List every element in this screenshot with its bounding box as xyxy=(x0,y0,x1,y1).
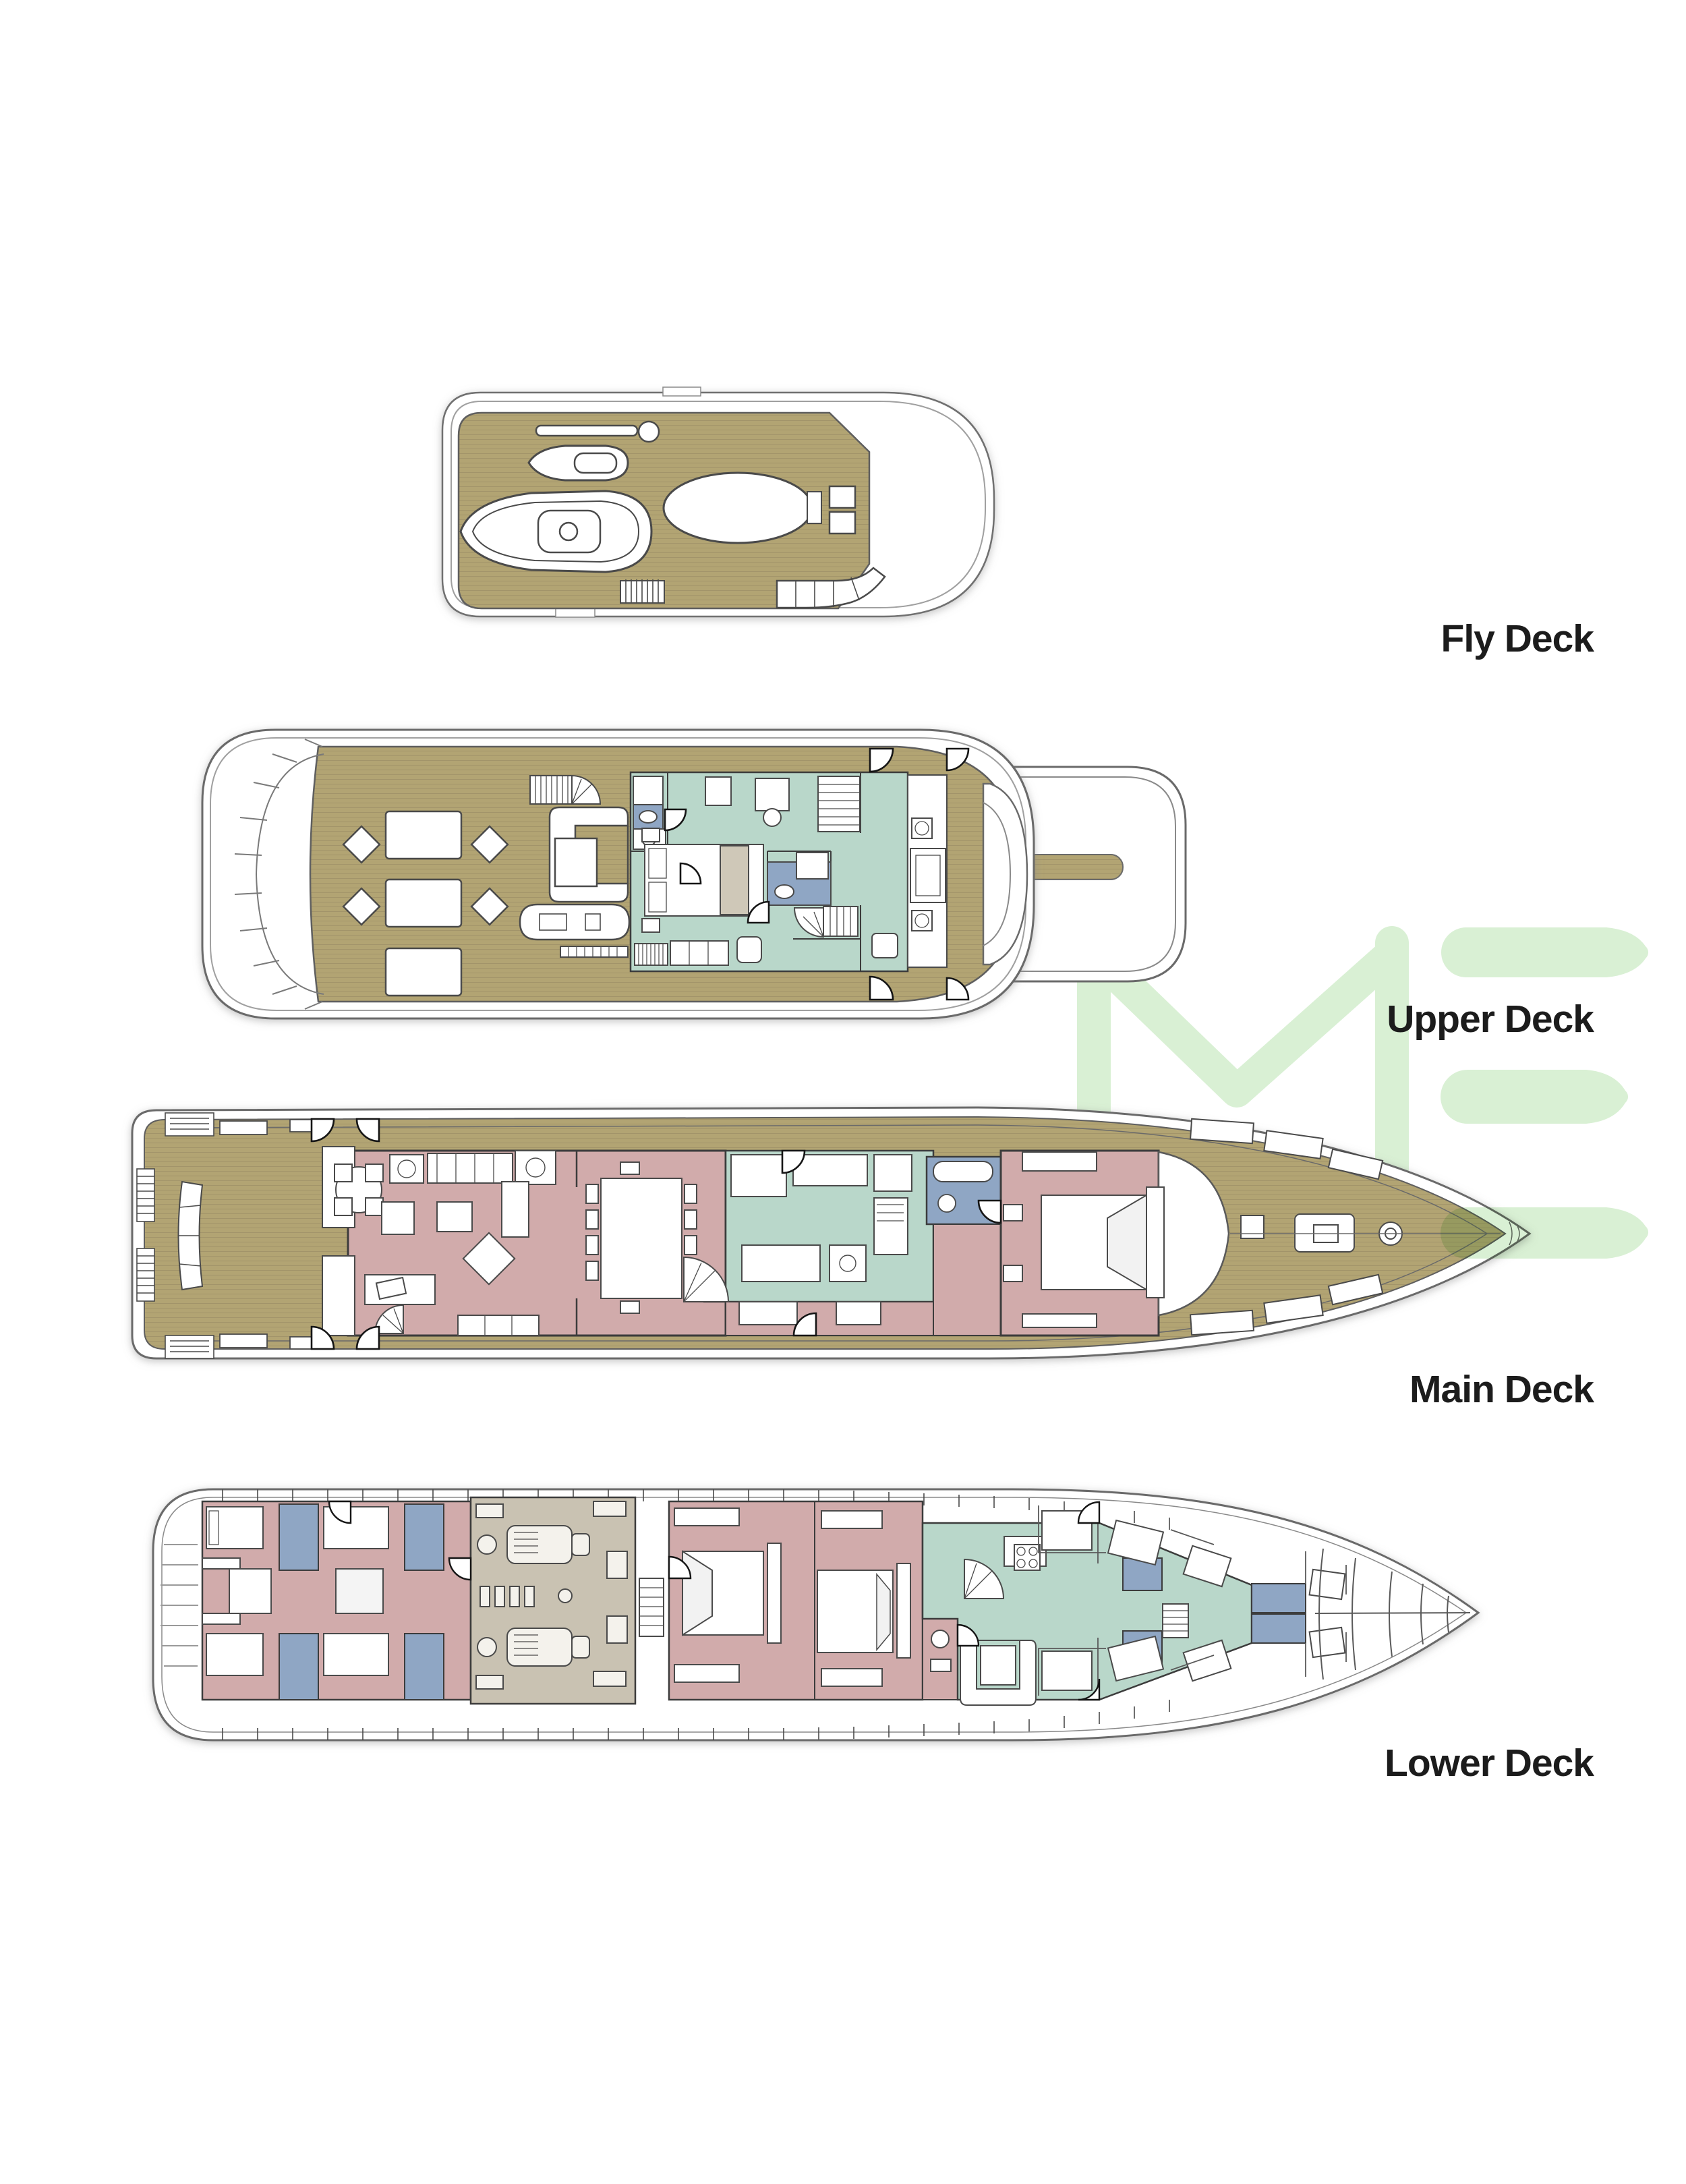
svg-text:Fly Deck: Fly Deck xyxy=(1441,617,1595,660)
svg-text:Upper Deck: Upper Deck xyxy=(1387,998,1594,1041)
svg-text:Lower Deck: Lower Deck xyxy=(1385,1742,1594,1785)
svg-text:Main Deck: Main Deck xyxy=(1409,1368,1594,1411)
